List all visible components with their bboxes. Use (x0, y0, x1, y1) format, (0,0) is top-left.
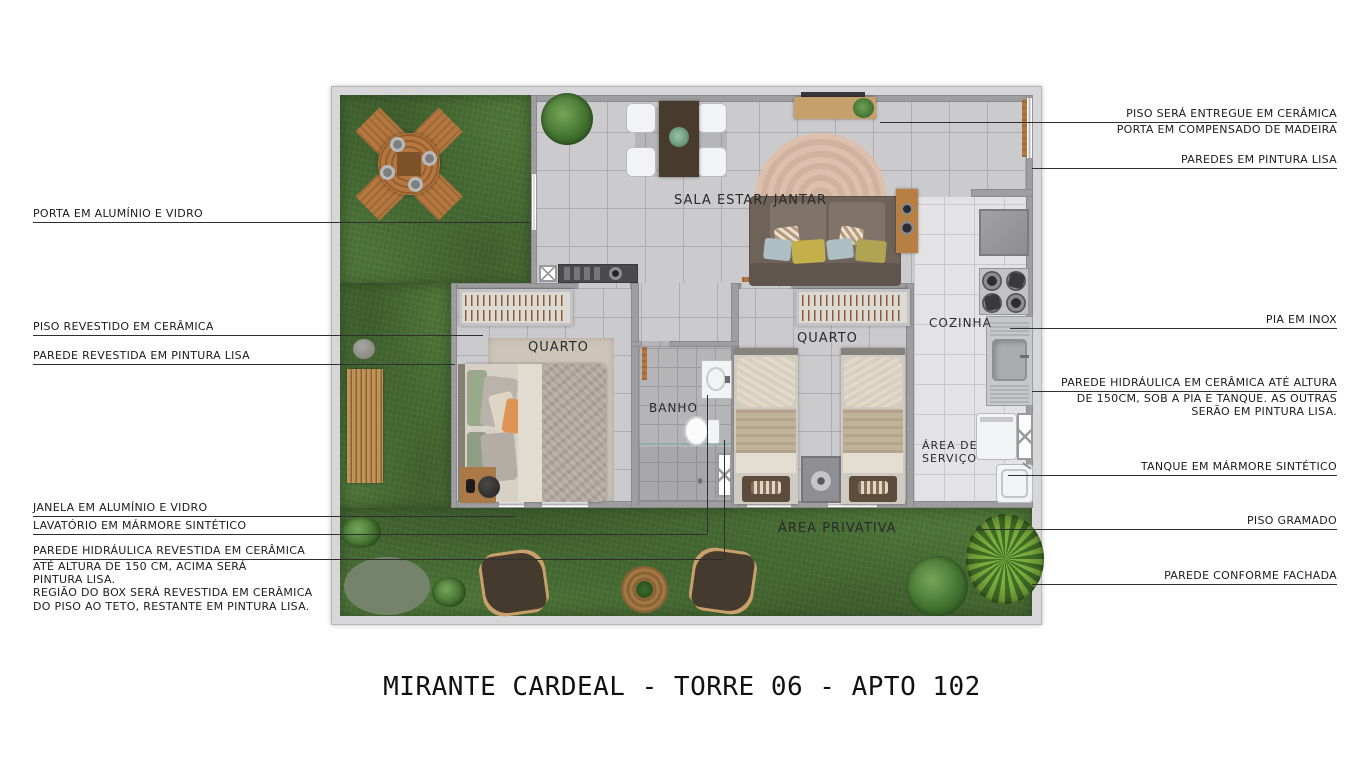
callout-extra-line: REGIÃO DO BOX SERÁ REVESTIDA EM CERÂMICA (33, 586, 313, 599)
fridge (979, 209, 1029, 256)
callout-piso-ceramica: PISO REVESTIDO EM CERÂMICA (33, 320, 214, 333)
bed-a-headboard (734, 348, 798, 355)
garden-bench (347, 369, 383, 483)
wall-kitchen-partition (971, 189, 1033, 197)
wardrobe-1-hangers-b (465, 310, 567, 321)
sink-basin (992, 339, 1027, 381)
bedroom1-bottle (466, 479, 475, 493)
flower-bush (344, 557, 430, 615)
leader-lavatorio-v (707, 395, 708, 534)
bedroom1-stool (478, 476, 500, 498)
vase-1 (901, 203, 913, 215)
bedroom1-window-a (498, 501, 525, 508)
callout-text: JANELA EM ALUMÍNIO E VIDRO (33, 501, 207, 514)
bedroom1-label: QUARTO (528, 340, 589, 355)
leader-tanque (1008, 475, 1337, 476)
wardrobe-2-hangers-b (802, 310, 904, 321)
callout-text: PAREDE CONFORME FACHADA (1164, 569, 1337, 582)
floor-plan: SALA ESTAR/ JANTAR QUARTO QUARTO BANHO C… (331, 86, 1042, 625)
service-window (1017, 413, 1033, 460)
callout-parede-hidraulica-coz: PAREDE HIDRÁULICA EM CERÂMICA ATÉ ALTURA… (1061, 376, 1337, 418)
bed1-sheet (518, 364, 542, 502)
callout-text: PISO SERÁ ENTREGUE EM CERÂMICA (1126, 107, 1337, 120)
callout-porta-aluminio: PORTA EM ALUMÍNIO E VIDRO (33, 207, 203, 220)
toilet-bowl (684, 416, 709, 446)
media-rack-items (564, 267, 604, 280)
pillow-yellow-1 (791, 239, 826, 264)
bathroom-door-leaf (642, 347, 647, 380)
pillow-olive (855, 239, 887, 264)
floor-plan-page: SALA ESTAR/ JANTAR QUARTO QUARTO BANHO C… (0, 0, 1364, 767)
plate-n (390, 137, 405, 152)
callout-text: PORTA EM ALUMÍNIO E VIDRO (33, 207, 203, 220)
dining-chair-3 (626, 147, 656, 177)
callout-text: PAREDE HIDRÁULICA EM CERÂMICA ATÉ ALTURA (1061, 376, 1337, 389)
bedroom1-window-b (541, 501, 589, 508)
callout-parede-hidraulica-banho: PAREDE HIDRÁULICA REVESTIDA EM CERÂMICA … (33, 544, 313, 613)
callout-lavatorio: LAVATÓRIO EM MÁRMORE SINTÉTICO (33, 519, 246, 532)
callout-extra-line: PINTURA LISA. (33, 573, 313, 586)
entry-door-leaf (1022, 99, 1027, 157)
leader-pia-inox (1010, 328, 1337, 329)
palm-plant (966, 514, 1044, 604)
leader-piso-ceramica (33, 335, 483, 336)
leader-parede-hidraulica-v (724, 440, 725, 559)
callout-paredes-pintura: PAREDES EM PINTURA LISA (1181, 153, 1337, 166)
leader-piso-gramado (978, 529, 1337, 530)
callout-parede-fachada: PAREDE CONFORME FACHADA (1164, 569, 1337, 582)
sideboard-plant (853, 98, 874, 118)
callout-text: PISO REVESTIDO EM CERÂMICA (33, 320, 214, 333)
service-area-label: ÁREA DE SERVIÇO (922, 439, 980, 465)
fern-plant (906, 556, 968, 616)
leader-parede-fachada (1032, 584, 1337, 585)
nightstand-lamp (811, 471, 831, 491)
callout-text: TANQUE EM MÁRMORE SINTÉTICO (1141, 460, 1337, 473)
garden-stone (353, 339, 375, 359)
bedroom1-door-gap (578, 283, 630, 289)
bush-small-mid (432, 577, 466, 607)
bathroom-label: BANHO (649, 401, 698, 415)
sink-faucet (1020, 355, 1029, 358)
bush-small-left (341, 516, 381, 548)
vase-2 (900, 221, 914, 235)
dining-table-plant (669, 127, 689, 147)
bedroom2-label: QUARTO (797, 331, 858, 346)
plate-s (408, 177, 423, 192)
stove-burner-1 (982, 271, 1002, 291)
callout-janela: JANELA EM ALUMÍNIO E VIDRO (33, 501, 207, 514)
stump-plant (636, 581, 653, 598)
callout-tanque: TANQUE EM MÁRMORE SINTÉTICO (1141, 460, 1337, 473)
bed-b-bench-pillow (858, 481, 888, 494)
page-title: MIRANTE CARDEAL - TORRE 06 - APTO 102 (383, 672, 981, 702)
tank-basin (1001, 469, 1028, 498)
leader-parede-pintura (33, 364, 455, 365)
callout-extra-line: SERÃO EM PINTURA LISA. (1061, 405, 1337, 418)
callout-text: PIA EM INOX (1266, 313, 1337, 326)
dining-chair-1 (626, 103, 656, 133)
callout-parede-pintura: PAREDE REVESTIDA EM PINTURA LISA (33, 349, 250, 362)
sofa-back (749, 263, 901, 286)
wall-left-bedroom1 (451, 283, 457, 508)
toilet-tank (707, 419, 720, 444)
vanity-sink (706, 367, 726, 391)
callout-piso-entregue: PISO SERÁ ENTREGUE EM CERÂMICA PORTA EM … (1117, 107, 1337, 136)
callout-text: PISO GRAMADO (1247, 514, 1337, 527)
callout-extra-line: PORTA EM COMPENSADO DE MADEIRA (1117, 123, 1337, 136)
washing-machine-panel (980, 417, 1013, 422)
bed-a-blanket (736, 409, 796, 453)
leader-paredes-pintura (1032, 168, 1337, 169)
leader-porta-aluminio (33, 222, 530, 223)
dining-chair-4 (697, 147, 727, 177)
corner-plant (541, 93, 593, 145)
callout-extra-line: DE 150CM, SOB A PIA E TANQUE. AS OUTRAS (1061, 392, 1337, 405)
callout-text: LAVATÓRIO EM MÁRMORE SINTÉTICO (33, 519, 246, 532)
drainboard-bottom (990, 385, 1029, 403)
shower-drain (696, 477, 704, 485)
living-duct-box (539, 265, 557, 282)
bed-b-sheet (843, 453, 903, 473)
pillow-blue-2 (826, 238, 854, 261)
leader-lavatorio-h (33, 534, 707, 535)
bed-b-blanket (843, 409, 903, 453)
callout-text: PAREDES EM PINTURA LISA (1181, 153, 1337, 166)
wardrobe-1-hangers-a (465, 295, 567, 306)
pillow-blue-1 (763, 238, 792, 262)
entry-door-gap (1026, 97, 1033, 159)
bed-b-pillow (844, 357, 902, 407)
callout-text: PAREDE REVESTIDA EM PINTURA LISA (33, 349, 250, 362)
vanity-faucet (725, 376, 730, 383)
living-glass-door (531, 173, 537, 231)
dining-chair-2 (697, 103, 727, 133)
callout-pia-inox: PIA EM INOX (1266, 313, 1337, 326)
callout-extra-line: DO PISO AO TETO, RESTANTE EM PINTURA LIS… (33, 600, 313, 613)
kitchen-label: COZINHA (929, 316, 992, 330)
wall-bath-left (631, 283, 639, 508)
private-area-label: ÁREA PRIVATIVA (778, 521, 897, 536)
wardrobe-2-hangers-a (802, 295, 904, 306)
leader-janela (33, 516, 515, 517)
wall-top (531, 95, 1033, 102)
plate-w (380, 165, 395, 180)
callout-piso-gramado: PISO GRAMADO (1247, 514, 1337, 527)
plate-e (422, 151, 437, 166)
patio-table-center (397, 152, 421, 176)
bed-b-headboard (841, 348, 905, 355)
callout-extra-line: ATÉ ALTURA DE 150 CM, ACIMA SERÁ (33, 560, 313, 573)
bed-a-sheet (736, 453, 796, 473)
bed-a-pillow (737, 357, 795, 407)
living-room-label: SALA ESTAR/ JANTAR (674, 193, 827, 208)
bed-a-bench-pillow (751, 481, 781, 494)
stove-burner-4 (1006, 293, 1026, 313)
callout-text: PAREDE HIDRÁULICA REVESTIDA EM CERÂMICA (33, 544, 305, 557)
bed1-blanket (542, 364, 606, 502)
speaker-knob (609, 267, 622, 280)
